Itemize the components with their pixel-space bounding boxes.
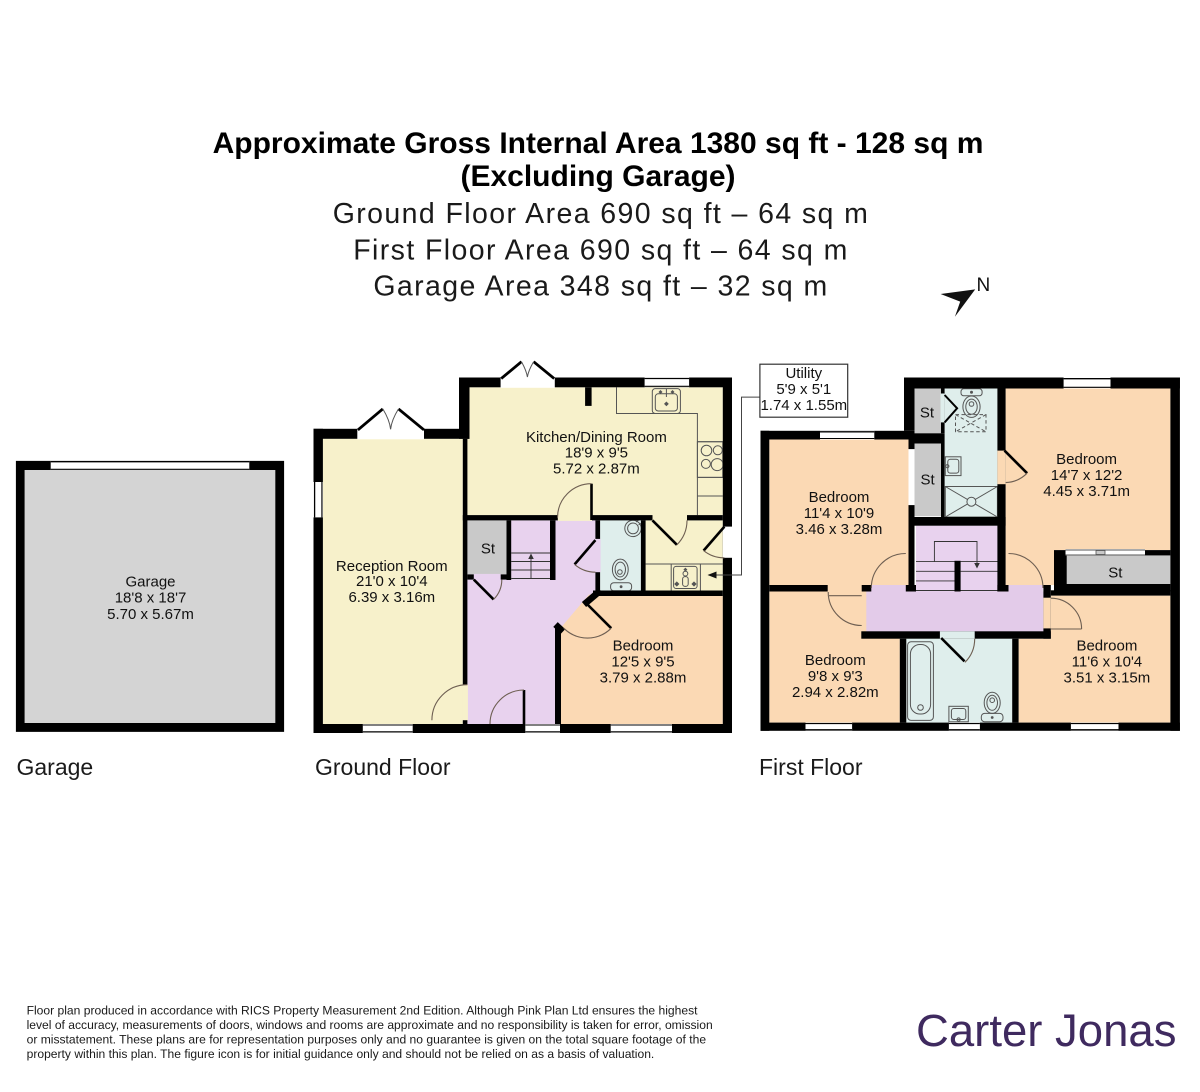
svg-text:Ground Floor: Ground Floor [315,754,451,780]
svg-text:5.70 x 5.67m: 5.70 x 5.67m [107,606,194,623]
svg-text:property within this plan. The: property within this plan. The figure ic… [27,1047,655,1061]
svg-text:St: St [1108,565,1123,582]
svg-text:First Floor Area 690 sq ft – 6: First Floor Area 690 sq ft – 64 sq m [353,234,849,266]
svg-text:11'6 x 10'4: 11'6 x 10'4 [1072,654,1143,671]
svg-text:Garage Area 348 sq ft – 32 sq: Garage Area 348 sq ft – 32 sq m [373,271,828,303]
svg-text:5'9 x 5'1: 5'9 x 5'1 [776,381,831,398]
svg-text:level of accuracy, measurement: level of accuracy, measurements of doors… [27,1018,713,1032]
svg-text:Bedroom: Bedroom [809,489,870,506]
svg-text:21'0 x 10'4: 21'0 x 10'4 [356,573,428,590]
svg-text:Bedroom: Bedroom [1076,638,1137,655]
svg-text:12'5 x 9'5: 12'5 x 9'5 [611,654,674,671]
svg-text:Kitchen/Dining Room: Kitchen/Dining Room [526,429,667,446]
svg-text:St: St [920,404,935,421]
svg-text:Carter Jonas: Carter Jonas [916,1005,1176,1056]
svg-text:Floor plan produced in accorda: Floor plan produced in accordance with R… [27,1004,699,1018]
svg-text:3.51 x 3.15m: 3.51 x 3.15m [1064,670,1151,687]
svg-text:11'4 x 10'9: 11'4 x 10'9 [804,505,875,522]
svg-text:Bedroom: Bedroom [613,638,674,655]
svg-text:Bedroom: Bedroom [805,652,866,669]
svg-text:5.72 x 2.87m: 5.72 x 2.87m [553,461,640,478]
svg-text:3.46 x 3.28m: 3.46 x 3.28m [796,521,883,538]
svg-text:(Excluding Garage): (Excluding Garage) [460,160,735,193]
svg-text:Garage: Garage [17,754,94,780]
svg-text:Ground Floor Area 690 sq ft –: Ground Floor Area 690 sq ft – 64 sq m [333,198,870,230]
svg-text:14'7 x 12'2: 14'7 x 12'2 [1051,467,1123,484]
svg-text:St: St [481,541,496,558]
svg-text:St: St [921,471,936,488]
svg-text:18'8 x 18'7: 18'8 x 18'7 [115,590,187,607]
svg-text:9'8 x 9'3: 9'8 x 9'3 [808,668,863,685]
svg-text:1.74 x 1.55m: 1.74 x 1.55m [760,397,847,414]
svg-text:18'9 x 9'5: 18'9 x 9'5 [565,444,628,461]
svg-text:6.39 x 3.16m: 6.39 x 3.16m [348,589,435,606]
svg-text:3.79 x 2.88m: 3.79 x 2.88m [600,670,687,687]
svg-text:Garage: Garage [125,573,175,590]
svg-text:N: N [977,275,991,296]
svg-text:Utility: Utility [785,365,822,382]
svg-text:2.94 x 2.82m: 2.94 x 2.82m [792,684,879,701]
svg-text:Bedroom: Bedroom [1056,451,1117,468]
svg-text:Approximate Gross Internal Are: Approximate Gross Internal Area 1380 sq … [213,127,984,160]
svg-text:First Floor: First Floor [759,754,863,780]
svg-text:or misstatement. These plans a: or misstatement. These plans are for rep… [27,1033,707,1047]
svg-text:4.45 x 3.71m: 4.45 x 3.71m [1043,483,1130,500]
